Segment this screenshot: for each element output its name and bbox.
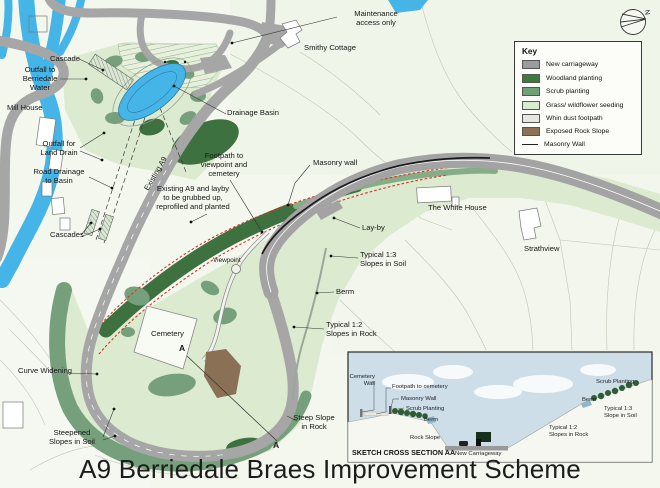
- cs-cemetery-wall-mark: [360, 409, 363, 417]
- key-row-new-carriageway: New carriageway: [522, 60, 635, 69]
- swatch-scrub: [522, 87, 540, 96]
- cs-label-masonry-wall: Masonry Wall: [401, 396, 436, 403]
- cs-label-footpath: Footpath to cemetery: [392, 384, 448, 391]
- label-berm: Berm: [336, 288, 354, 297]
- label-grubbed-up: Existing A9 and layby to be grubbed up, …: [152, 185, 234, 212]
- swatch-woodland: [522, 74, 540, 83]
- label-smithy-cottage: Smithy Cottage: [304, 44, 356, 53]
- label-steepened-slopes: Steepened Slopes in Soil: [40, 429, 104, 447]
- swatch-masonry-wall-line: [522, 144, 538, 145]
- label-white-house: The White House: [428, 204, 487, 213]
- section-marker-a-top: A: [179, 343, 185, 353]
- map-key: Key New carriageway Woodland planting Sc…: [514, 41, 642, 155]
- swatch-rock-slope: [522, 127, 540, 136]
- label-outfall-land-drain: Outfall for Land Drain: [36, 140, 82, 158]
- key-row-scrub: Scrub planting: [522, 87, 635, 96]
- map-sheet: Maintenance access only Cascade Outfall …: [0, 0, 660, 488]
- cs-label-slopes-1-2: Typical 1:2 Slopes in Rock: [549, 425, 588, 439]
- label-steep-slope: Steep Slope in Rock: [288, 414, 340, 432]
- cs-label-rock-slope: Rock Slope: [410, 435, 440, 442]
- label-cascade: Cascade: [50, 55, 80, 64]
- label-viewpoint: Viewpoint: [213, 257, 241, 265]
- label-slopes-1-3: Typical 1:3 Slopes in Soil: [360, 251, 406, 269]
- label-mill-house: Mill House: [7, 104, 42, 113]
- label-cemetery: Cemetery: [151, 330, 184, 339]
- label-layby: Lay-by: [362, 224, 385, 233]
- cs-label-scrub-left: Scrub Planting: [406, 406, 444, 413]
- key-row-whin-dust: Whin dust footpath: [522, 114, 635, 123]
- cs-label-berm-right: Berm: [582, 397, 596, 404]
- swatch-new-carriageway: [522, 60, 540, 69]
- label-road-drainage: Road Drainage to Basin: [28, 168, 90, 186]
- swatch-whin-dust: [522, 114, 540, 123]
- key-row-rock-slope: Exposed Rock Slope: [522, 127, 635, 136]
- label-drainage-basin: Drainage Basin: [227, 109, 279, 118]
- cs-label-slope-1-3: Typical 1:3 Slope in Soil: [604, 406, 637, 420]
- label-maintenance-access: Maintenance access only: [336, 10, 416, 28]
- viewpoint-circle: [232, 265, 241, 274]
- label-outfall-berriedale: Outfall to Berriedale Water: [14, 66, 66, 93]
- label-slopes-1-2: Typical 1:2 Slopes in Rock: [326, 321, 377, 339]
- key-row-woodland: Woodland planting: [522, 74, 635, 83]
- label-masonry-wall: Masonry wall: [313, 159, 357, 168]
- sheet-title: A9 Berriedale Braes Improvement Scheme: [0, 454, 660, 485]
- section-marker-a-bottom: A: [273, 440, 279, 450]
- label-cascades: Cascades: [50, 231, 84, 240]
- swatch-grass: [522, 101, 540, 110]
- cs-label-scrub-right: Scrub Planting: [596, 379, 634, 386]
- key-title: Key: [522, 47, 635, 56]
- key-row-masonry-wall: Masonry Wall: [522, 141, 635, 148]
- key-row-grass: Grass/ wildflower seeding: [522, 101, 635, 110]
- label-curve-widening: Curve Widening: [18, 367, 72, 376]
- label-strathview: Strathview: [524, 245, 559, 254]
- label-footpath: Footpath to viewpoint and cemetery: [196, 152, 252, 179]
- cs-label-cemetery-wall: Cemetery Wall: [349, 374, 375, 388]
- cs-label-berm-left: Berm: [424, 417, 438, 424]
